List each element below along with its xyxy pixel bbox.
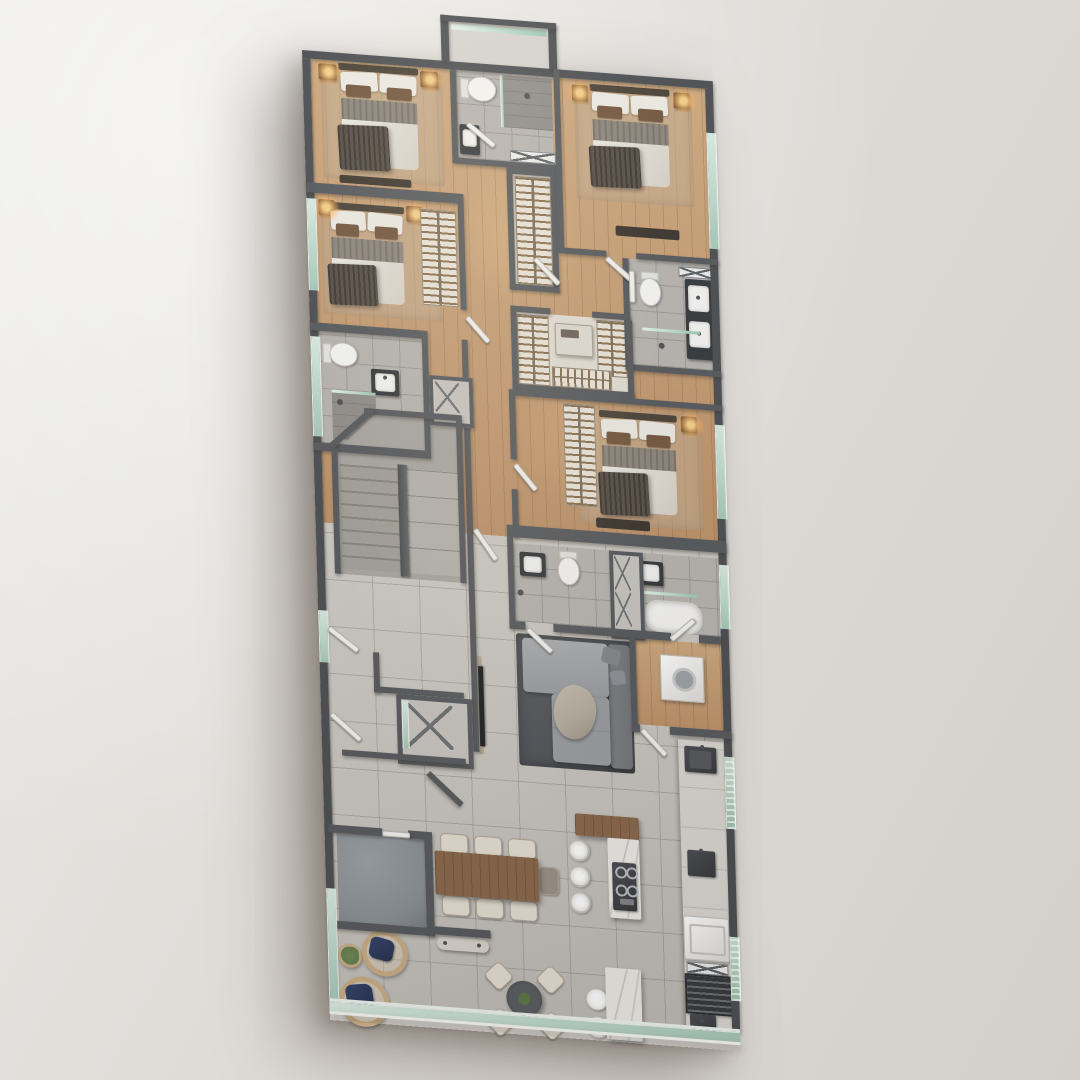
bedroom-2-bed <box>328 202 407 308</box>
accent-cushion <box>387 87 412 101</box>
floor-plan <box>302 50 741 1051</box>
window <box>724 757 736 830</box>
light-well-wall <box>548 23 557 70</box>
duct-x-brace <box>614 556 631 591</box>
stair-flight-left <box>340 464 401 572</box>
window <box>729 937 741 1002</box>
faucet <box>383 375 387 379</box>
faucet <box>700 1018 704 1022</box>
duct-x-brace <box>435 381 460 413</box>
wall <box>509 621 525 630</box>
bedroom-4-bed <box>599 410 680 518</box>
grill-grate <box>685 973 734 1017</box>
closet-island <box>555 323 594 358</box>
scene-background <box>0 0 1080 1080</box>
bedroom-1-bed <box>338 63 421 173</box>
shower-floor <box>503 75 553 131</box>
elevator-x-brace <box>406 703 453 750</box>
elevator-glass <box>401 700 409 749</box>
faucet <box>700 745 704 749</box>
accent-cushion <box>374 226 398 240</box>
shower-fixture <box>517 589 523 595</box>
sofa-pillow <box>609 670 626 685</box>
sink-basin <box>689 750 711 770</box>
accent-cushion <box>638 109 663 123</box>
light-well-wall <box>440 15 449 62</box>
window <box>715 425 728 520</box>
console-leg <box>477 943 481 947</box>
blanket <box>328 263 379 306</box>
wall <box>699 635 721 645</box>
duct-x-brace <box>615 592 632 627</box>
sink <box>642 564 659 582</box>
accent-cushion <box>336 223 360 237</box>
shower-fixture <box>337 399 343 405</box>
burner <box>626 885 638 898</box>
storage-room <box>336 833 426 928</box>
cooktop-controls <box>620 898 634 905</box>
prep-sink <box>687 850 716 878</box>
burner <box>626 867 638 880</box>
accent-cushion <box>346 84 371 98</box>
sink <box>523 556 541 573</box>
window <box>706 133 719 250</box>
dining-end-chair <box>538 866 559 896</box>
dining-chair <box>510 900 538 922</box>
blanket <box>338 124 392 171</box>
window <box>719 565 731 630</box>
bedroom-3-bed <box>589 84 672 190</box>
dining-table <box>434 850 539 902</box>
accent-cushion <box>646 434 670 448</box>
blanket <box>589 146 643 189</box>
accent-cushion <box>597 105 622 119</box>
wall <box>632 724 640 733</box>
oven-door <box>689 924 726 957</box>
door-bathroom-3 <box>629 270 636 302</box>
bedroom-4-closet-rail <box>563 403 598 507</box>
dining-chair <box>442 895 470 917</box>
bathtub <box>644 599 703 635</box>
console-leg <box>443 941 447 945</box>
bedroom-2-closet-rail <box>420 209 459 308</box>
accent-cushion <box>606 431 630 445</box>
shower-fixture <box>524 93 530 99</box>
window <box>318 610 329 663</box>
walk-in-rail-left <box>517 314 551 386</box>
faucet <box>699 849 703 853</box>
shower-fixture <box>659 343 665 349</box>
blanket <box>598 472 650 517</box>
closet-island-tray <box>561 329 579 338</box>
faucet <box>696 296 700 300</box>
stair-flight-right <box>407 469 461 577</box>
dining-chair <box>476 897 504 919</box>
